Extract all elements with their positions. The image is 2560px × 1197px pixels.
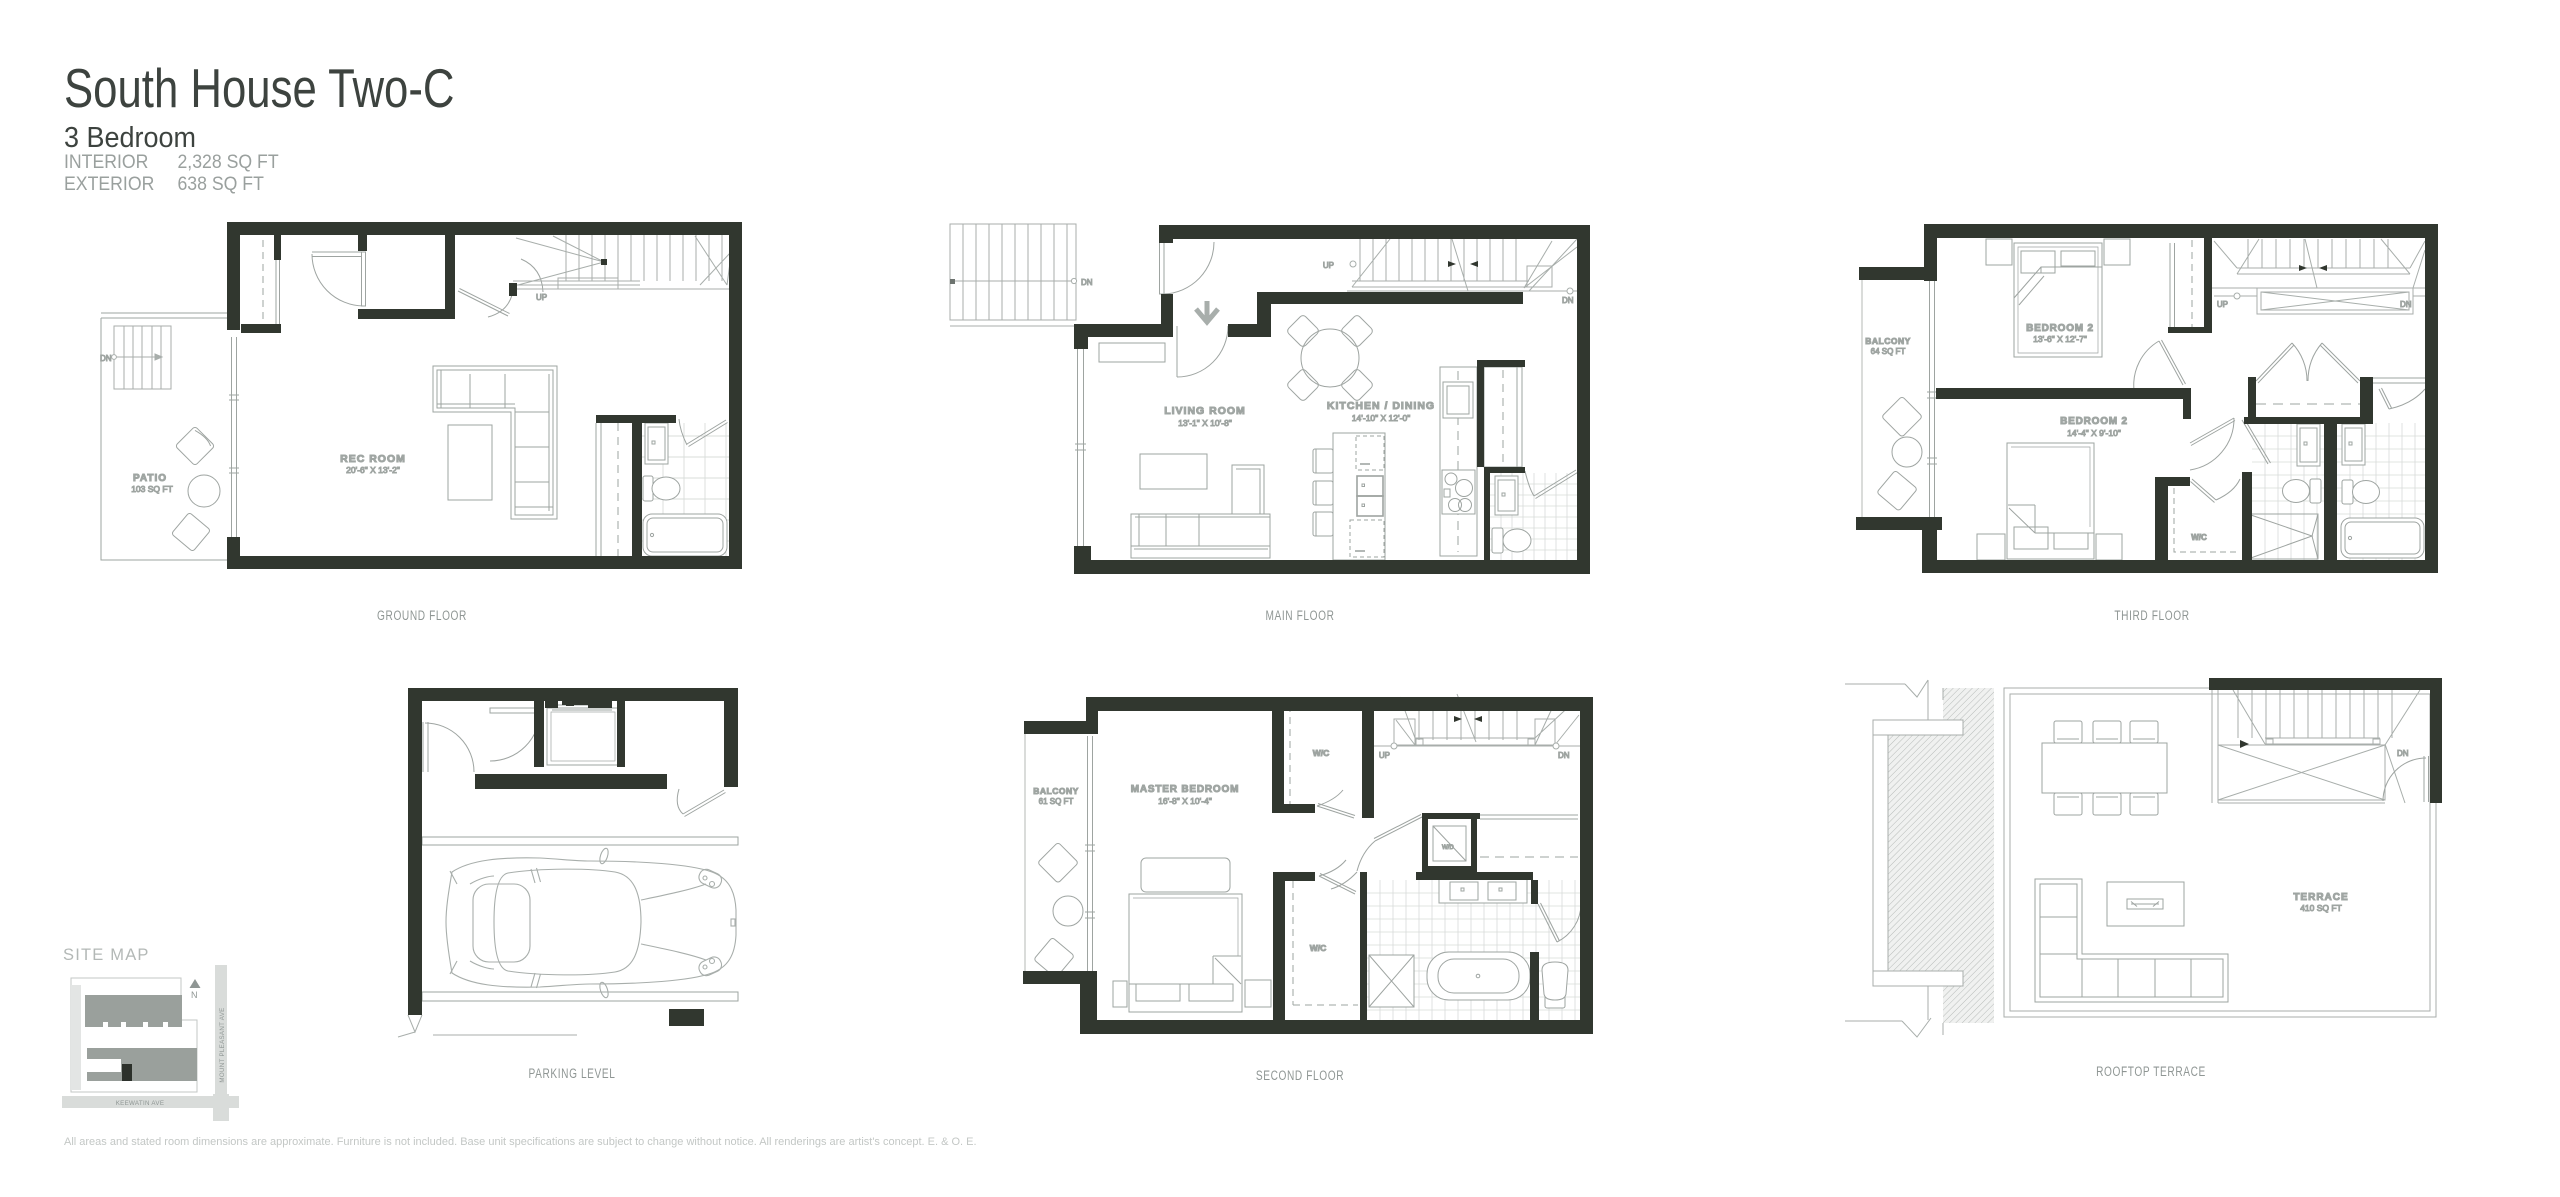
svg-text:DN: DN bbox=[1562, 296, 1574, 305]
svg-text:103 SQ FT: 103 SQ FT bbox=[131, 484, 173, 494]
svg-text:BEDROOM 2: BEDROOM 2 bbox=[2026, 323, 2094, 334]
svg-text:MOUNT PLEASANT AVE: MOUNT PLEASANT AVE bbox=[219, 1007, 226, 1082]
svg-text:61 SQ FT: 61 SQ FT bbox=[1039, 797, 1074, 806]
svg-text:MASTER BEDROOM: MASTER BEDROOM bbox=[1131, 784, 1239, 795]
svg-text:DN: DN bbox=[100, 354, 112, 363]
svg-text:14'-10" X 12'-0": 14'-10" X 12'-0" bbox=[1352, 413, 1410, 423]
svg-text:UP: UP bbox=[536, 293, 547, 302]
svg-text:UP: UP bbox=[1323, 261, 1334, 270]
svg-text:LIVING ROOM: LIVING ROOM bbox=[1164, 405, 1246, 417]
svg-text:20'-6" X 13'-2": 20'-6" X 13'-2" bbox=[346, 465, 400, 475]
svg-text:PATIO: PATIO bbox=[133, 473, 167, 484]
svg-text:DN: DN bbox=[1558, 751, 1570, 760]
svg-text:BALCONY: BALCONY bbox=[1865, 336, 1911, 346]
svg-text:16'-8" X 10'-4": 16'-8" X 10'-4" bbox=[1158, 796, 1212, 806]
svg-text:BALCONY: BALCONY bbox=[1033, 786, 1079, 796]
svg-text:410 SQ FT: 410 SQ FT bbox=[2300, 903, 2342, 913]
svg-text:DN: DN bbox=[2400, 300, 2412, 309]
svg-text:N: N bbox=[191, 990, 198, 1000]
svg-text:W/C: W/C bbox=[1310, 943, 1327, 953]
svg-text:64 SQ FT: 64 SQ FT bbox=[1871, 347, 1906, 356]
svg-text:SITE MAP: SITE MAP bbox=[63, 946, 150, 964]
svg-text:TERRACE: TERRACE bbox=[2293, 892, 2348, 903]
svg-text:W/D: W/D bbox=[1442, 845, 1454, 851]
svg-text:KITCHEN / DINING: KITCHEN / DINING bbox=[1327, 400, 1435, 412]
svg-text:DN: DN bbox=[1081, 278, 1093, 287]
svg-text:KEEWATIN AVE: KEEWATIN AVE bbox=[116, 1100, 165, 1107]
svg-text:DN: DN bbox=[2397, 749, 2409, 758]
svg-text:13'-1" X 10'-8": 13'-1" X 10'-8" bbox=[1178, 418, 1232, 428]
svg-text:UP: UP bbox=[2217, 300, 2228, 309]
svg-text:13'-6" X 12'-7": 13'-6" X 12'-7" bbox=[2033, 334, 2087, 344]
svg-text:W/C: W/C bbox=[2191, 533, 2207, 542]
svg-text:14'-4" X 9'-10": 14'-4" X 9'-10" bbox=[2067, 428, 2121, 438]
svg-text:UP: UP bbox=[1379, 751, 1390, 760]
svg-text:BEDROOM 2: BEDROOM 2 bbox=[2060, 416, 2128, 427]
svg-text:REC ROOM: REC ROOM bbox=[340, 453, 406, 465]
svg-text:W/C: W/C bbox=[1313, 748, 1330, 758]
